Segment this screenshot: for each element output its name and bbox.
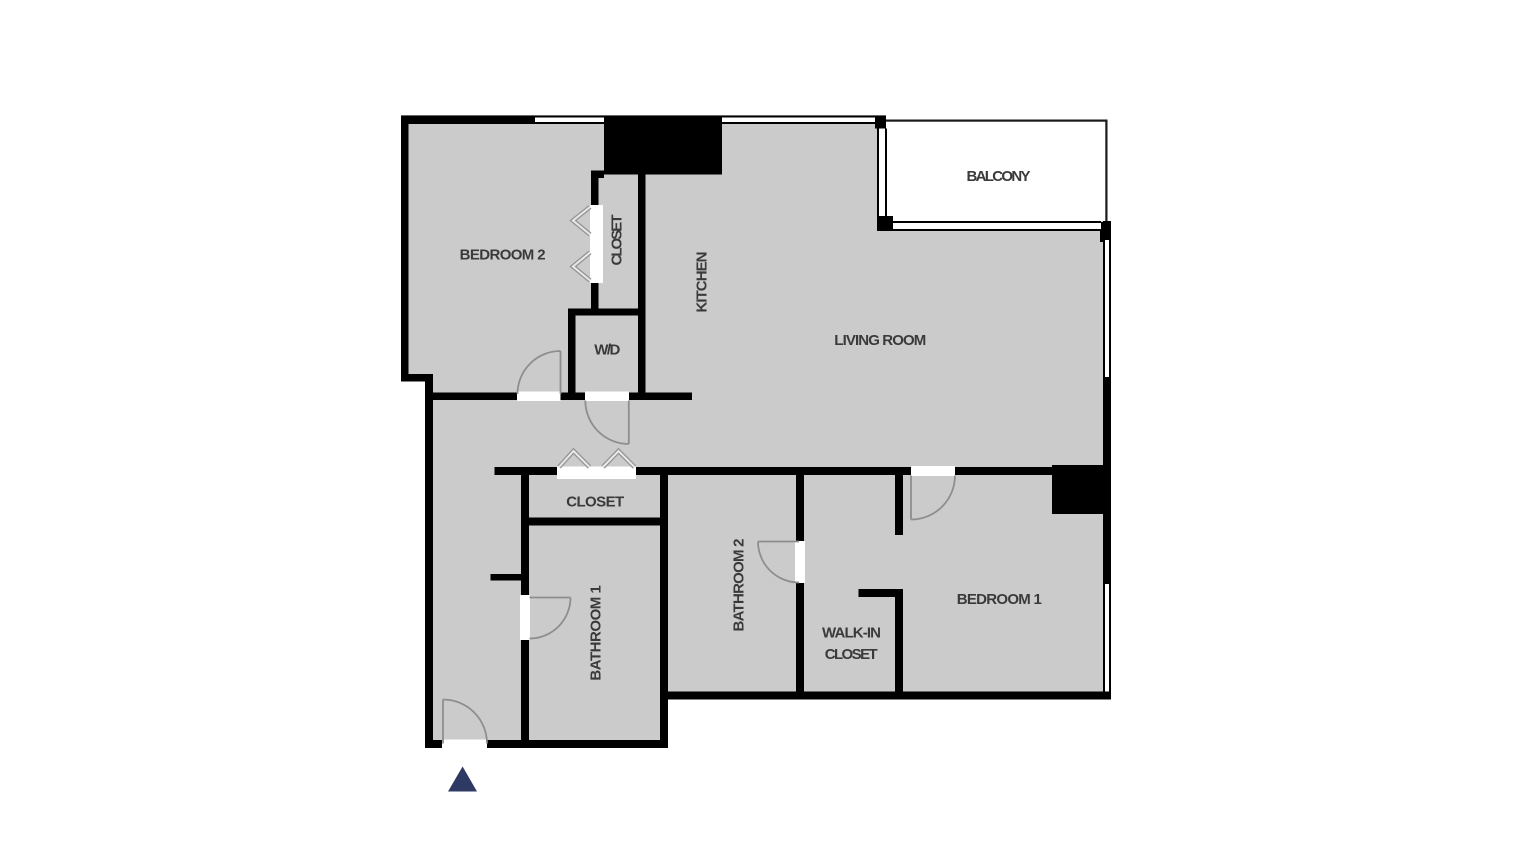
svg-text:BEDROOM 2: BEDROOM 2 xyxy=(460,246,546,263)
svg-text:BATHROOM 1: BATHROOM 1 xyxy=(587,585,604,681)
svg-text:CLOSET: CLOSET xyxy=(825,646,878,663)
svg-text:WALK-IN: WALK-IN xyxy=(822,625,881,642)
svg-text:LIVING ROOM: LIVING ROOM xyxy=(834,332,926,349)
svg-text:BEDROOM 1: BEDROOM 1 xyxy=(957,591,1042,608)
svg-text:W/D: W/D xyxy=(594,342,620,359)
svg-text:CLOSET: CLOSET xyxy=(609,215,626,266)
svg-text:CLOSET: CLOSET xyxy=(566,494,624,511)
svg-text:KITCHEN: KITCHEN xyxy=(694,252,711,313)
svg-text:BALCONY: BALCONY xyxy=(967,168,1031,185)
svg-text:BATHROOM 2: BATHROOM 2 xyxy=(731,539,748,632)
